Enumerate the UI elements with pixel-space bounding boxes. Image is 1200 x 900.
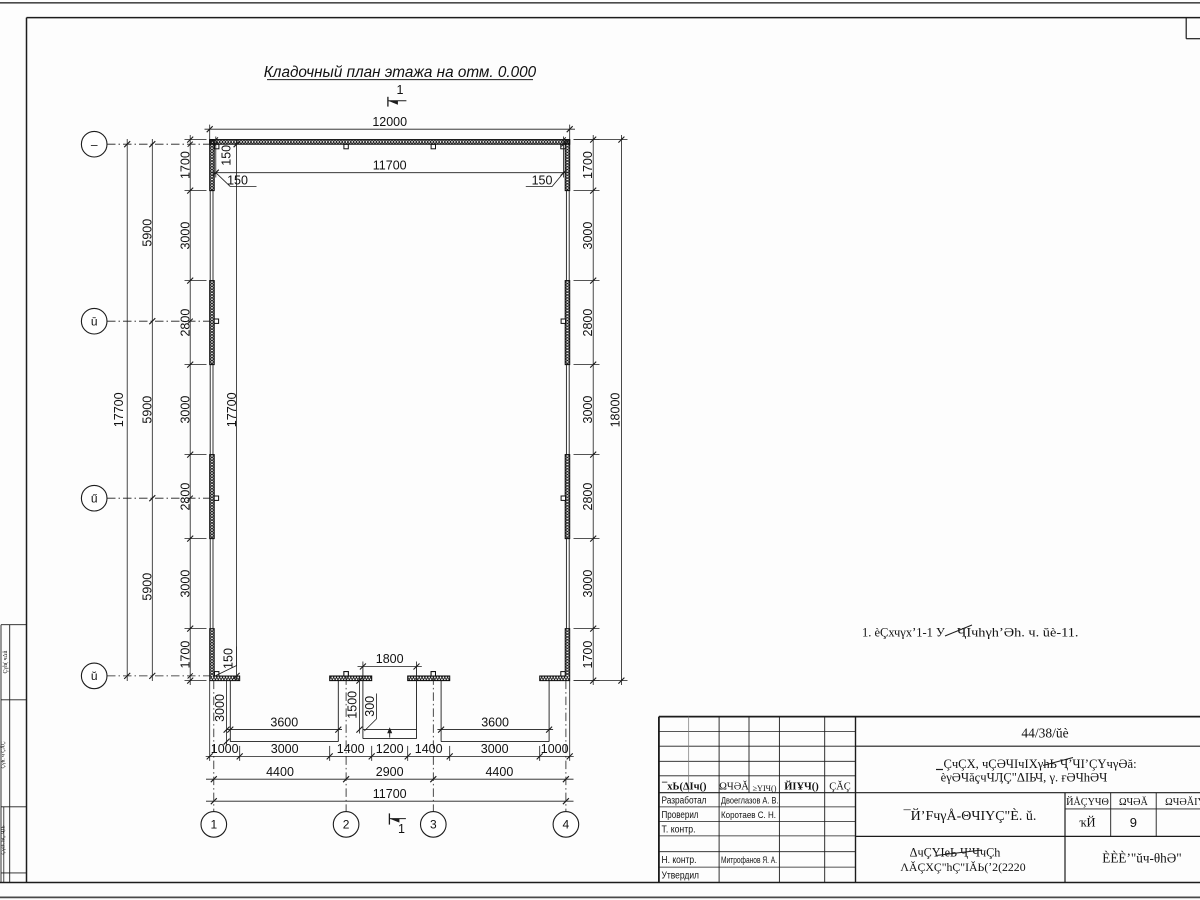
- svg-text:Проверил: Проверил: [662, 810, 699, 821]
- svg-text:150: 150: [532, 173, 553, 187]
- svg-text:2800: 2800: [581, 483, 595, 511]
- svg-text:Çγh. ч ÇĂÇ: Çγh. ч ÇĂÇ: [0, 741, 7, 768]
- svg-text:3000: 3000: [178, 396, 192, 424]
- svg-text:Н. контр.: Н. контр.: [662, 855, 697, 866]
- svg-text:44/38/ŭè: 44/38/ŭè: [1021, 726, 1068, 741]
- svg-text:ҡЙ: ҡЙ: [1079, 816, 1095, 830]
- svg-text:3000: 3000: [581, 396, 595, 424]
- svg-text:ЙÅÇҮЧΘ: ЙÅÇҮЧΘ: [1066, 796, 1109, 808]
- svg-text:3000: 3000: [178, 222, 192, 250]
- svg-text:3000: 3000: [213, 694, 227, 722]
- svg-text:ŭ: ŭ: [91, 669, 98, 683]
- svg-text:ЙIҰЧ(): ЙIҰЧ(): [784, 781, 819, 793]
- svg-text:≥YIЧ(): ≥YIЧ(): [753, 784, 777, 793]
- svg-text:3000: 3000: [271, 742, 299, 756]
- svg-text:18000: 18000: [608, 393, 622, 428]
- svg-text:5900: 5900: [141, 219, 155, 247]
- svg-text:17700: 17700: [225, 392, 239, 427]
- svg-text:1700: 1700: [178, 641, 192, 669]
- svg-text:300: 300: [363, 696, 377, 717]
- svg-text:Коротаев С. Н.: Коротаев С. Н.: [721, 810, 776, 821]
- svg-text:1000: 1000: [211, 742, 239, 756]
- svg-text:3000: 3000: [581, 570, 595, 598]
- svg-text:1000: 1000: [541, 742, 569, 756]
- svg-text:3000: 3000: [178, 570, 192, 598]
- svg-text:ÈÈÈʼ"ŭч-θhӘ": ÈÈÈʼ"ŭч-θhӘ": [1102, 851, 1181, 866]
- svg-text:ΩЧӘĂ: ΩЧӘĂ: [719, 781, 749, 793]
- svg-text:ΔчÇҮIеЬ ҶʼЧчÇh: ΔчÇҮIеЬ ҶʼЧчÇh: [910, 846, 1001, 860]
- svg-text:4400: 4400: [266, 765, 294, 779]
- svg-text:1: 1: [210, 818, 217, 832]
- svg-text:4: 4: [563, 818, 570, 832]
- svg-text:150: 150: [227, 173, 248, 187]
- svg-text:Т. контр.: Т. контр.: [662, 824, 696, 835]
- svg-text:12000: 12000: [372, 115, 407, 129]
- svg-text:ū: ū: [91, 314, 98, 328]
- svg-text:¯хЬ(ΔIч(): ¯хЬ(ΔIч(): [661, 782, 707, 793]
- svg-text:1: 1: [397, 83, 404, 97]
- svg-text:5900: 5900: [141, 573, 155, 601]
- svg-text:1200: 1200: [376, 742, 404, 756]
- svg-text:1700: 1700: [178, 151, 192, 179]
- svg-text:17700: 17700: [112, 392, 126, 427]
- svg-text:¯ЙʼFчγÅ-ΘЧIҮÇ"È. ŭ.: ¯ЙʼFчγÅ-ΘЧIҮÇ"È. ŭ.: [903, 807, 1037, 824]
- svg-text:Çγh( чΔŭ: Çγh( чΔŭ: [2, 650, 9, 673]
- svg-text:ÇγӘ. hÇ ҶIЬ: ÇγӘ. hÇ ҶIЬ: [1, 825, 7, 854]
- svg-text:ΩЧӘĂIҮ: ΩЧӘĂIҮ: [1165, 796, 1200, 808]
- svg-text:1400: 1400: [415, 742, 443, 756]
- svg-text:1: 1: [398, 822, 405, 836]
- svg-text:1400: 1400: [337, 742, 365, 756]
- svg-text:–: –: [91, 137, 98, 151]
- svg-text:ÇчÇХ, чÇӘЧIчIХγhЬ ҶʼЧIʼÇҮчγӘă:: ÇчÇХ, чÇӘЧIчIХγhЬ ҶʼЧIʼÇҮчγӘă:: [943, 757, 1136, 771]
- svg-text:1800: 1800: [376, 652, 404, 666]
- svg-text:150: 150: [222, 648, 236, 669]
- svg-text:1700: 1700: [581, 151, 595, 179]
- svg-text:1. èÇхчγхʼ1-1 У: 1. èÇхчγхʼ1-1 У: [862, 626, 945, 640]
- svg-text:3: 3: [430, 818, 437, 832]
- svg-text:èγӘЧăçчЧӅÇ"ΔIЬЧ, γ. ғӘЧhӘЧ: èγӘЧăçчЧӅÇ"ΔIЬЧ, γ. ғӘЧhӘЧ: [941, 771, 1108, 785]
- svg-text:5900: 5900: [141, 396, 155, 424]
- svg-text:2800: 2800: [581, 309, 595, 337]
- svg-text:2800: 2800: [178, 483, 192, 511]
- svg-text:1500: 1500: [345, 691, 359, 719]
- svg-text:Двоеглазов А. В.: Двоеглазов А. В.: [721, 796, 779, 807]
- svg-text:Кладочный план этажа на отм. 0: Кладочный план этажа на отм. 0.000: [264, 64, 537, 81]
- svg-text:3000: 3000: [581, 222, 595, 250]
- svg-text:3000: 3000: [481, 742, 509, 756]
- svg-text:2: 2: [343, 818, 350, 832]
- svg-text:2900: 2900: [376, 765, 404, 779]
- svg-text:ű: ű: [91, 491, 98, 505]
- svg-text:ҶIчhγhʼӘh. ч. ŭè-11.: ҶIчhγhʼӘh. ч. ŭè-11.: [957, 626, 1079, 640]
- svg-text:Митрофанов Я. А.: Митрофанов Я. А.: [721, 855, 777, 865]
- svg-text:11700: 11700: [373, 158, 407, 172]
- svg-text:ΛĂÇХÇ"hÇ"IĂЬ(ʼ2(2220: ΛĂÇХÇ"hÇ"IĂЬ(ʼ2(2220: [900, 860, 1025, 874]
- svg-text:11700: 11700: [373, 787, 407, 801]
- svg-text:1700: 1700: [581, 641, 595, 669]
- svg-text:3600: 3600: [481, 715, 509, 729]
- svg-text:Утвердил: Утвердил: [662, 870, 700, 881]
- svg-text:2800: 2800: [178, 309, 192, 337]
- svg-text:3600: 3600: [270, 715, 298, 729]
- svg-text:150: 150: [219, 145, 233, 166]
- svg-text:ÇĂÇ: ÇĂÇ: [829, 781, 851, 793]
- svg-text:Разработал: Разработал: [662, 796, 707, 807]
- svg-text:4400: 4400: [485, 765, 513, 779]
- svg-text:9: 9: [1130, 815, 1137, 830]
- svg-text:ΩЧӘĂ: ΩЧӘĂ: [1119, 796, 1149, 808]
